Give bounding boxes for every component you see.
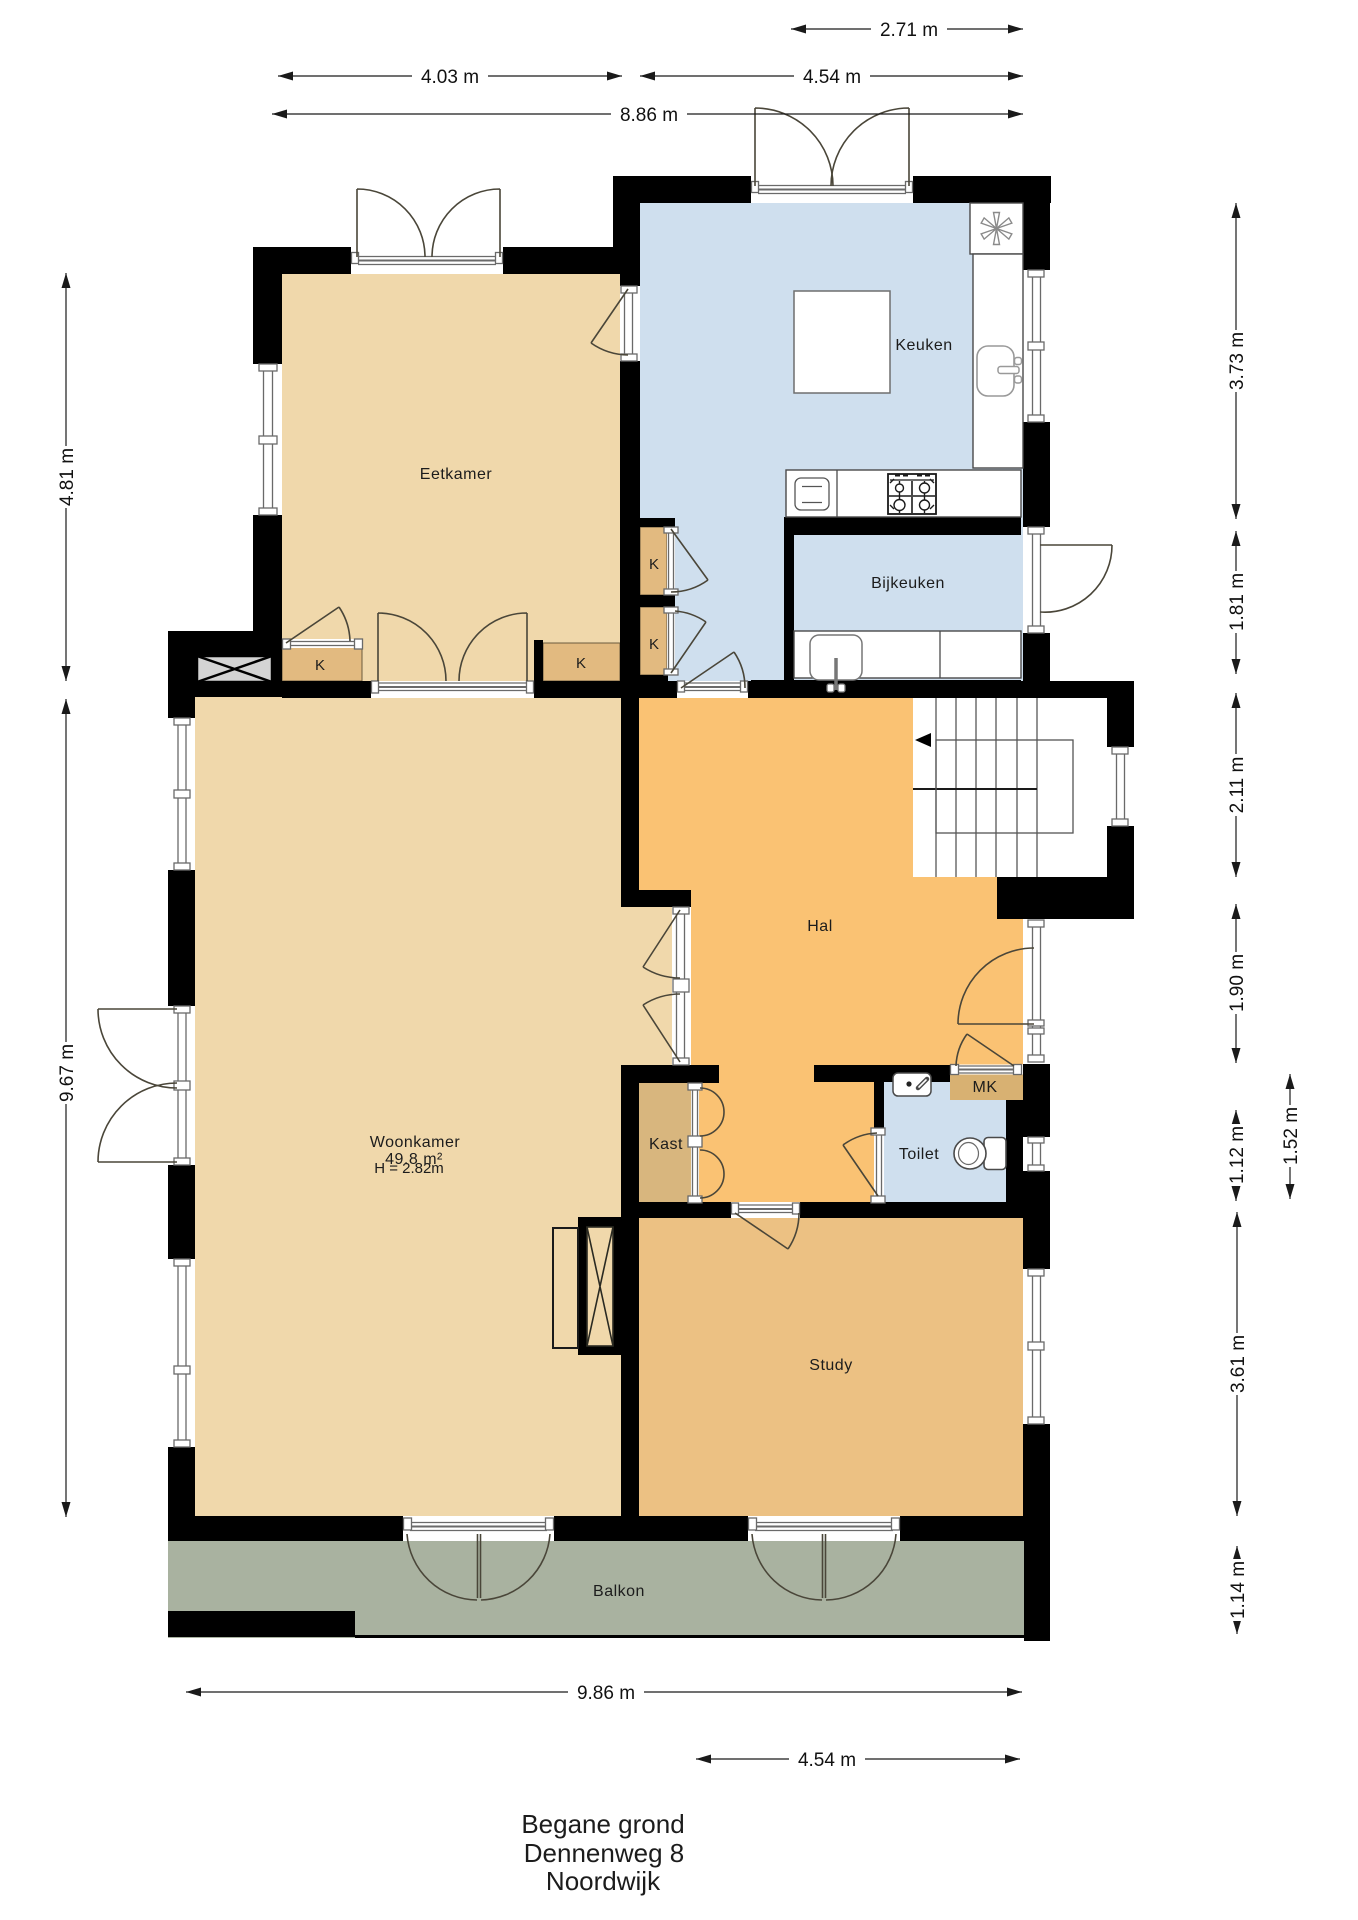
svg-text:MK: MK	[973, 1079, 998, 1096]
svg-text:Balkon: Balkon	[593, 1583, 645, 1600]
svg-text:8.86 m: 8.86 m	[620, 105, 678, 126]
svg-text:2.11 m: 2.11 m	[1227, 757, 1248, 814]
svg-text:K: K	[576, 655, 586, 672]
svg-text:Woonkamer: Woonkamer	[370, 1134, 461, 1151]
svg-text:4.54 m: 4.54 m	[798, 1750, 856, 1771]
svg-text:Eetkamer: Eetkamer	[420, 466, 493, 483]
svg-text:4.03 m: 4.03 m	[421, 67, 479, 88]
svg-text:K: K	[649, 556, 659, 573]
svg-text:3.61 m: 3.61 m	[1228, 1335, 1249, 1393]
svg-text:Dennenweg 8: Dennenweg 8	[524, 1838, 684, 1868]
svg-text:1.14 m: 1.14 m	[1228, 1561, 1249, 1619]
svg-text:Keuken: Keuken	[895, 337, 952, 354]
svg-text:Hal: Hal	[807, 918, 833, 935]
svg-text:Noordwijk: Noordwijk	[546, 1866, 661, 1896]
svg-text:Toilet: Toilet	[899, 1146, 939, 1163]
svg-text:Kast: Kast	[649, 1136, 683, 1153]
svg-text:K: K	[649, 636, 659, 653]
svg-text:4.54 m: 4.54 m	[803, 67, 861, 88]
svg-text:1.52 m: 1.52 m	[1281, 1107, 1302, 1165]
svg-text:9.86 m: 9.86 m	[577, 1683, 635, 1704]
svg-text:K: K	[315, 657, 325, 674]
svg-text:1.12 m: 1.12 m	[1227, 1126, 1248, 1184]
svg-text:1.81 m: 1.81 m	[1227, 573, 1248, 631]
svg-text:1.90 m: 1.90 m	[1227, 954, 1248, 1012]
svg-text:Bijkeuken: Bijkeuken	[871, 575, 945, 592]
svg-text:4.81 m: 4.81 m	[57, 448, 78, 506]
svg-text:Study: Study	[809, 1357, 852, 1374]
svg-text:Begane grond: Begane grond	[521, 1809, 684, 1839]
svg-text:3.73 m: 3.73 m	[1227, 332, 1248, 390]
svg-text:9.67 m: 9.67 m	[57, 1044, 78, 1102]
svg-text:2.71 m: 2.71 m	[880, 20, 938, 41]
svg-text:H = 2.82m: H = 2.82m	[374, 1160, 444, 1177]
